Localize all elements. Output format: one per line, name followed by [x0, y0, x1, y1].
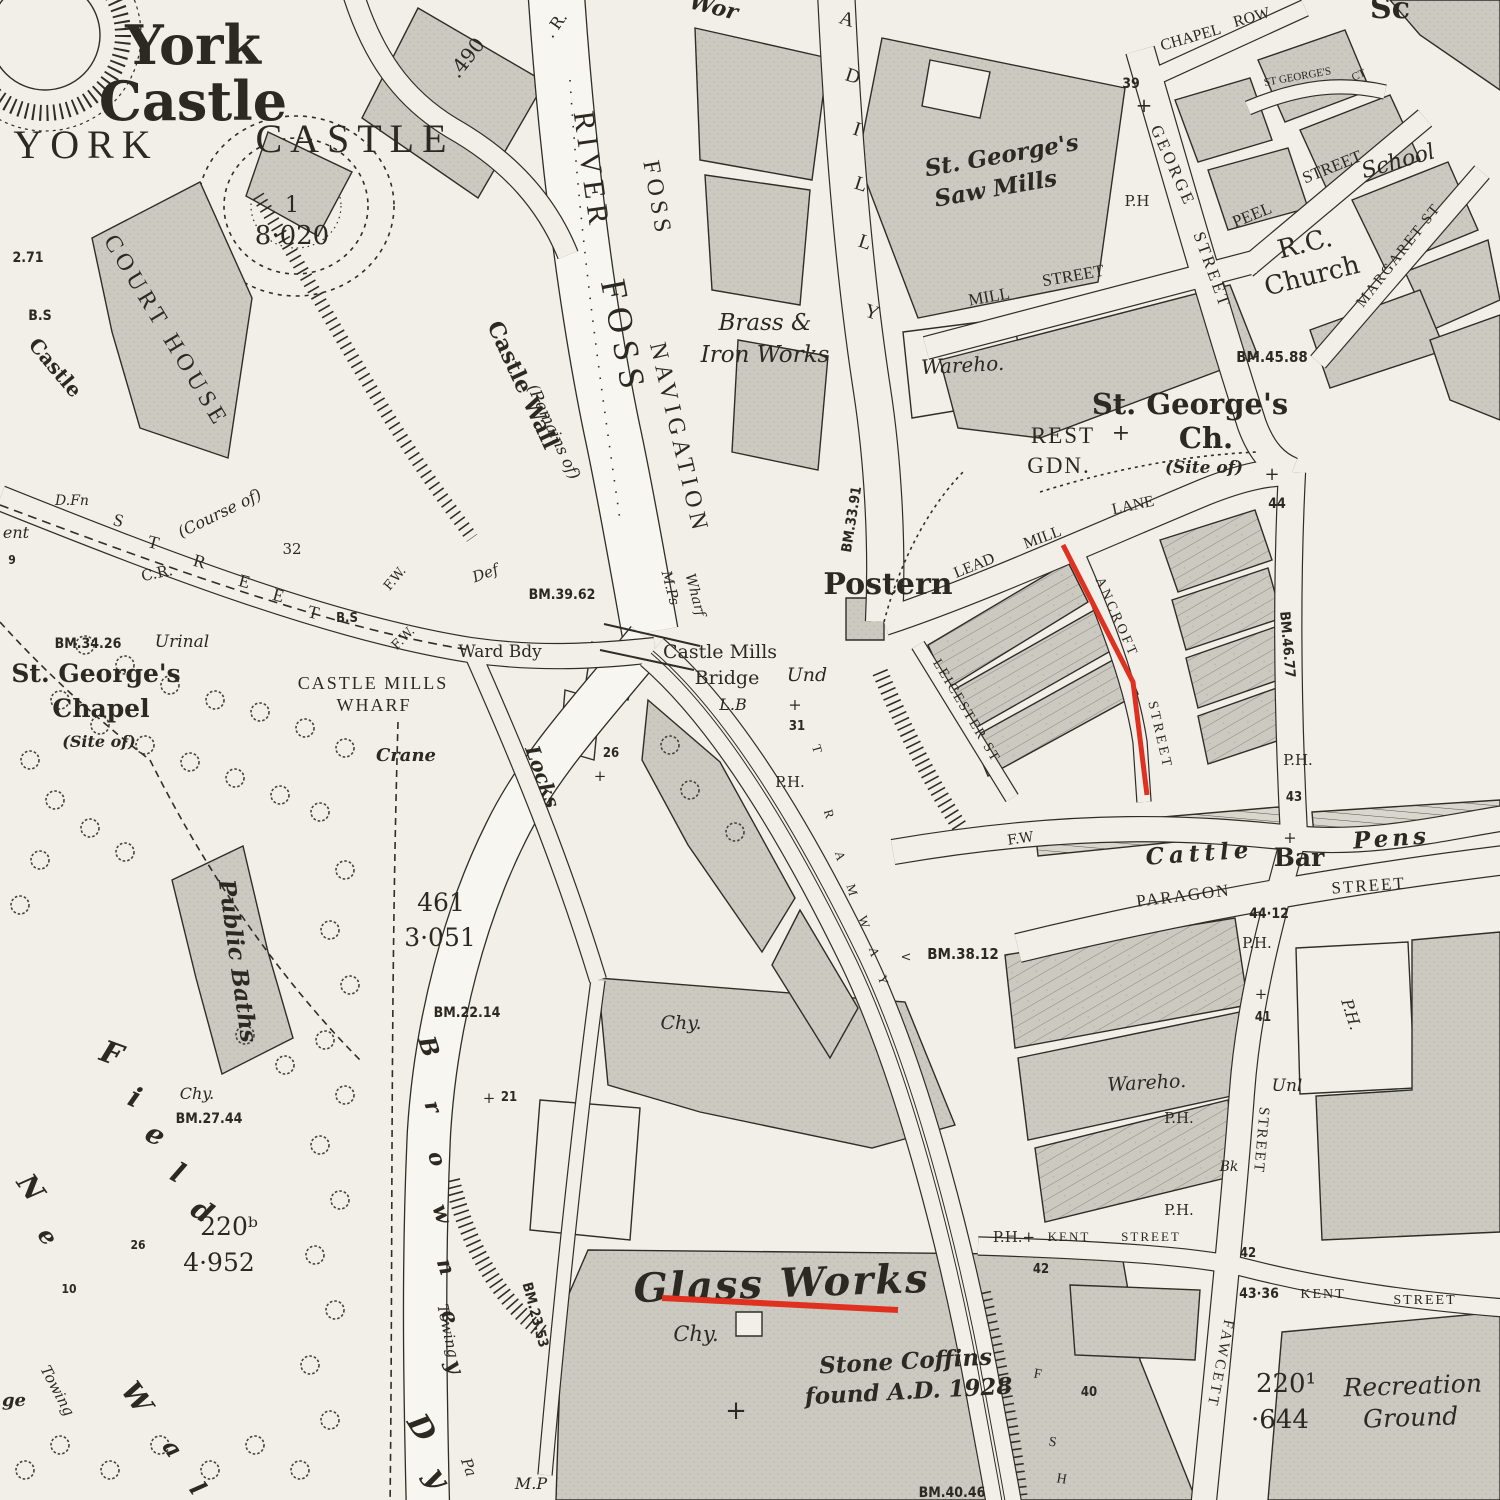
map-label: Postern [823, 567, 952, 602]
map-label: Castle Mills [663, 641, 777, 663]
map-label: ent [3, 523, 30, 542]
map-label: 461 [417, 888, 465, 917]
map-label: M.P [514, 1474, 547, 1493]
map-label: St. George's [11, 659, 180, 688]
map-label: 39 [1122, 76, 1140, 92]
map-label: P.H. [1164, 1201, 1194, 1219]
map-label: + [725, 1396, 747, 1426]
map-label: 44 [1268, 496, 1286, 512]
map-label: St. George's [1092, 387, 1288, 421]
building [736, 1312, 762, 1336]
map-label: Sc [1370, 0, 1410, 26]
map-label: ge [2, 1390, 26, 1411]
map-label: STREET [1393, 1293, 1456, 1308]
map-label: Chy. [673, 1322, 718, 1346]
map-label: + [1112, 421, 1130, 446]
map-label: Chapel [52, 694, 149, 723]
map-label: ·644 [1251, 1405, 1309, 1435]
map-label: 26 [130, 1238, 145, 1252]
map-label: 1 [285, 193, 299, 218]
map-label: 220¹ [1256, 1369, 1316, 1399]
map-label: Chy. [660, 1012, 701, 1034]
map-label: KENT [1048, 1229, 1091, 1244]
map-label: Ground [1363, 1401, 1459, 1433]
map-label: P.H. [775, 773, 805, 791]
map-label: Bar [1274, 843, 1325, 872]
map-label: REST [1031, 423, 1095, 448]
map-label: Bk [1219, 1159, 1239, 1175]
map-label: 41 [1255, 1010, 1271, 1025]
map-label: 43 [1286, 790, 1302, 805]
map-label: BM.22.14 [434, 1005, 501, 1021]
map-label: STREET [1121, 1229, 1181, 1244]
map-label: Brass & [718, 310, 812, 336]
map-label: 4·952 [183, 1248, 255, 1277]
map-label: 42 [1240, 1246, 1256, 1261]
map-label: + [1283, 828, 1296, 847]
map-label: 44·12 [1249, 906, 1289, 922]
map-label: 21 [501, 1090, 517, 1105]
map-label: 42 [1033, 1262, 1049, 1277]
map-label: + [1264, 464, 1279, 485]
map-label: 40 [1081, 1385, 1097, 1400]
map-label: CASTLE MILLS [298, 673, 449, 693]
map-label: 9 [8, 553, 16, 567]
map-label: YORK [13, 122, 158, 167]
map-label: 2.71 [12, 250, 43, 266]
map-label: P.H. [1283, 751, 1313, 769]
map-label: BM.38.12 [927, 945, 999, 963]
map-label: P.H. [1242, 934, 1272, 952]
map-label: Pens [1351, 822, 1431, 854]
map-label: Unl [1272, 1076, 1303, 1096]
map-label: + [1136, 93, 1153, 117]
map-label: BM.27.44 [176, 1111, 243, 1127]
map-label: Iron Works [700, 342, 830, 368]
map-label: (Site of) [1165, 458, 1243, 478]
map-label: Und [787, 664, 827, 686]
building [705, 175, 810, 305]
map-label: + [1255, 985, 1268, 1003]
map-label: York [124, 13, 262, 77]
map-label: < [901, 950, 912, 965]
map-label: 220ᵇ [200, 1212, 258, 1241]
map-label: D.Fn [54, 493, 89, 509]
map-label: GDN. [1027, 453, 1091, 478]
map-label: (Site of) [62, 732, 135, 751]
map-label: BM.34.26 [55, 636, 122, 652]
map-label: Crane [376, 745, 436, 766]
map-label: Bridge [695, 667, 760, 689]
map-label: Ward Bdy [458, 642, 542, 662]
map-label: KENT [1300, 1287, 1345, 1302]
os-map-screenshot: YorkCastleYORKCASTLE18·020COURT HOUSE2.7… [0, 0, 1500, 1500]
map-label: 3·051 [404, 923, 476, 952]
map-canvas: YorkCastleYORKCASTLE18·020COURT HOUSE2.7… [0, 0, 1500, 1500]
map-label: 26 [603, 746, 619, 761]
map-label: BM.45.88 [1236, 348, 1308, 366]
map-label: + [483, 1089, 496, 1107]
map-label: P.H.+ [993, 1228, 1035, 1246]
map-label: B.S [28, 308, 51, 324]
map-label: 31 [789, 719, 805, 734]
map-label: B.S [336, 611, 358, 626]
map-label: + [788, 695, 801, 714]
building [1070, 1285, 1200, 1360]
map-label: 10 [61, 1282, 76, 1296]
map-label: 43·36 [1239, 1286, 1279, 1302]
map-label: BM.39.62 [529, 587, 596, 603]
map-label: Wareho. [1107, 1070, 1187, 1096]
map-label: P.H. [1164, 1109, 1194, 1127]
map-label: + [594, 767, 607, 785]
map-label: WHARF [336, 695, 411, 715]
map-label: Recreation [1342, 1369, 1482, 1403]
map-label: Chy. [180, 1084, 215, 1103]
map-label: BM.40.46 [919, 1485, 986, 1500]
map-label: Wareho. [921, 351, 1005, 379]
map-label: 32 [282, 540, 301, 558]
map-label: 8·020 [255, 221, 329, 251]
map-label: Ch. [1179, 421, 1233, 455]
map-label: P.H [1125, 192, 1150, 210]
map-label: CASTLE [255, 116, 454, 161]
map-label: Urinal [155, 632, 209, 652]
map-label: L.B [718, 695, 747, 714]
